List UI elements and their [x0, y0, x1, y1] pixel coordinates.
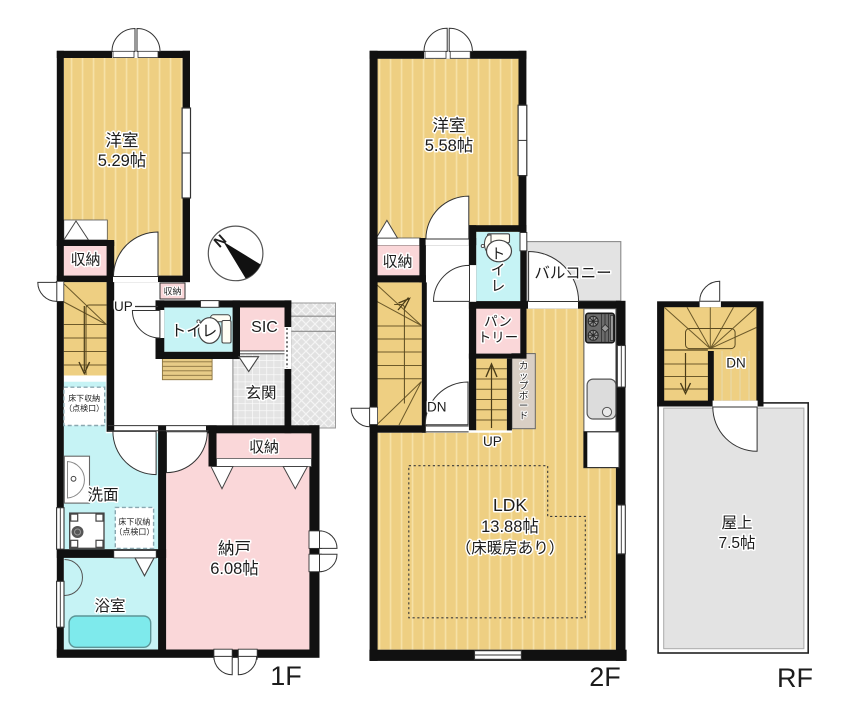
svg-text:床下収納: 床下収納: [118, 517, 150, 527]
svg-text:2F: 2F: [589, 662, 621, 692]
svg-text:洗面: 洗面: [87, 486, 118, 504]
svg-text:13.88帖: 13.88帖: [481, 517, 539, 536]
svg-text:洋室: 洋室: [106, 131, 139, 150]
svg-text:UP: UP: [483, 434, 502, 449]
svg-text:5.58帖: 5.58帖: [425, 136, 474, 155]
svg-text:（床暖房あり）: （床暖房あり）: [456, 539, 565, 557]
svg-text:7.5帖: 7.5帖: [718, 534, 755, 552]
svg-text:収納: 収納: [163, 286, 181, 297]
svg-text:LDK: LDK: [493, 495, 527, 515]
svg-text:玄関: 玄関: [245, 384, 276, 402]
svg-text:ト: ト: [491, 247, 506, 263]
svg-text:トリー: トリー: [478, 330, 519, 345]
svg-text:浴室: 浴室: [94, 597, 125, 615]
svg-text:5.29帖: 5.29帖: [98, 151, 147, 170]
svg-text:床下収納: 床下収納: [68, 393, 100, 403]
svg-text:トイレ: トイレ: [171, 323, 218, 340]
svg-text:（点検口）: （点検口）: [114, 527, 154, 537]
svg-text:6.08帖: 6.08帖: [210, 559, 259, 578]
svg-text:バルコニー: バルコニー: [534, 265, 611, 282]
svg-text:RF: RF: [777, 663, 813, 693]
svg-text:屋上: 屋上: [721, 514, 752, 532]
svg-text:納戸: 納戸: [218, 539, 251, 558]
svg-text:SIC: SIC: [251, 319, 278, 336]
svg-text:洋室: 洋室: [433, 116, 466, 135]
svg-text:収納: 収納: [70, 252, 100, 269]
svg-text:パン: パン: [484, 314, 512, 329]
svg-text:DN: DN: [427, 400, 447, 415]
svg-text:イ: イ: [491, 263, 506, 279]
svg-text:1F: 1F: [270, 661, 302, 691]
svg-text:ド: ド: [519, 411, 529, 422]
svg-text:DN: DN: [726, 356, 746, 371]
svg-text:収納: 収納: [382, 254, 412, 271]
svg-text:（点検口）: （点検口）: [64, 403, 104, 413]
svg-text:収納: 収納: [249, 439, 279, 456]
svg-text:UP: UP: [114, 299, 133, 314]
svg-text:レ: レ: [491, 279, 506, 295]
